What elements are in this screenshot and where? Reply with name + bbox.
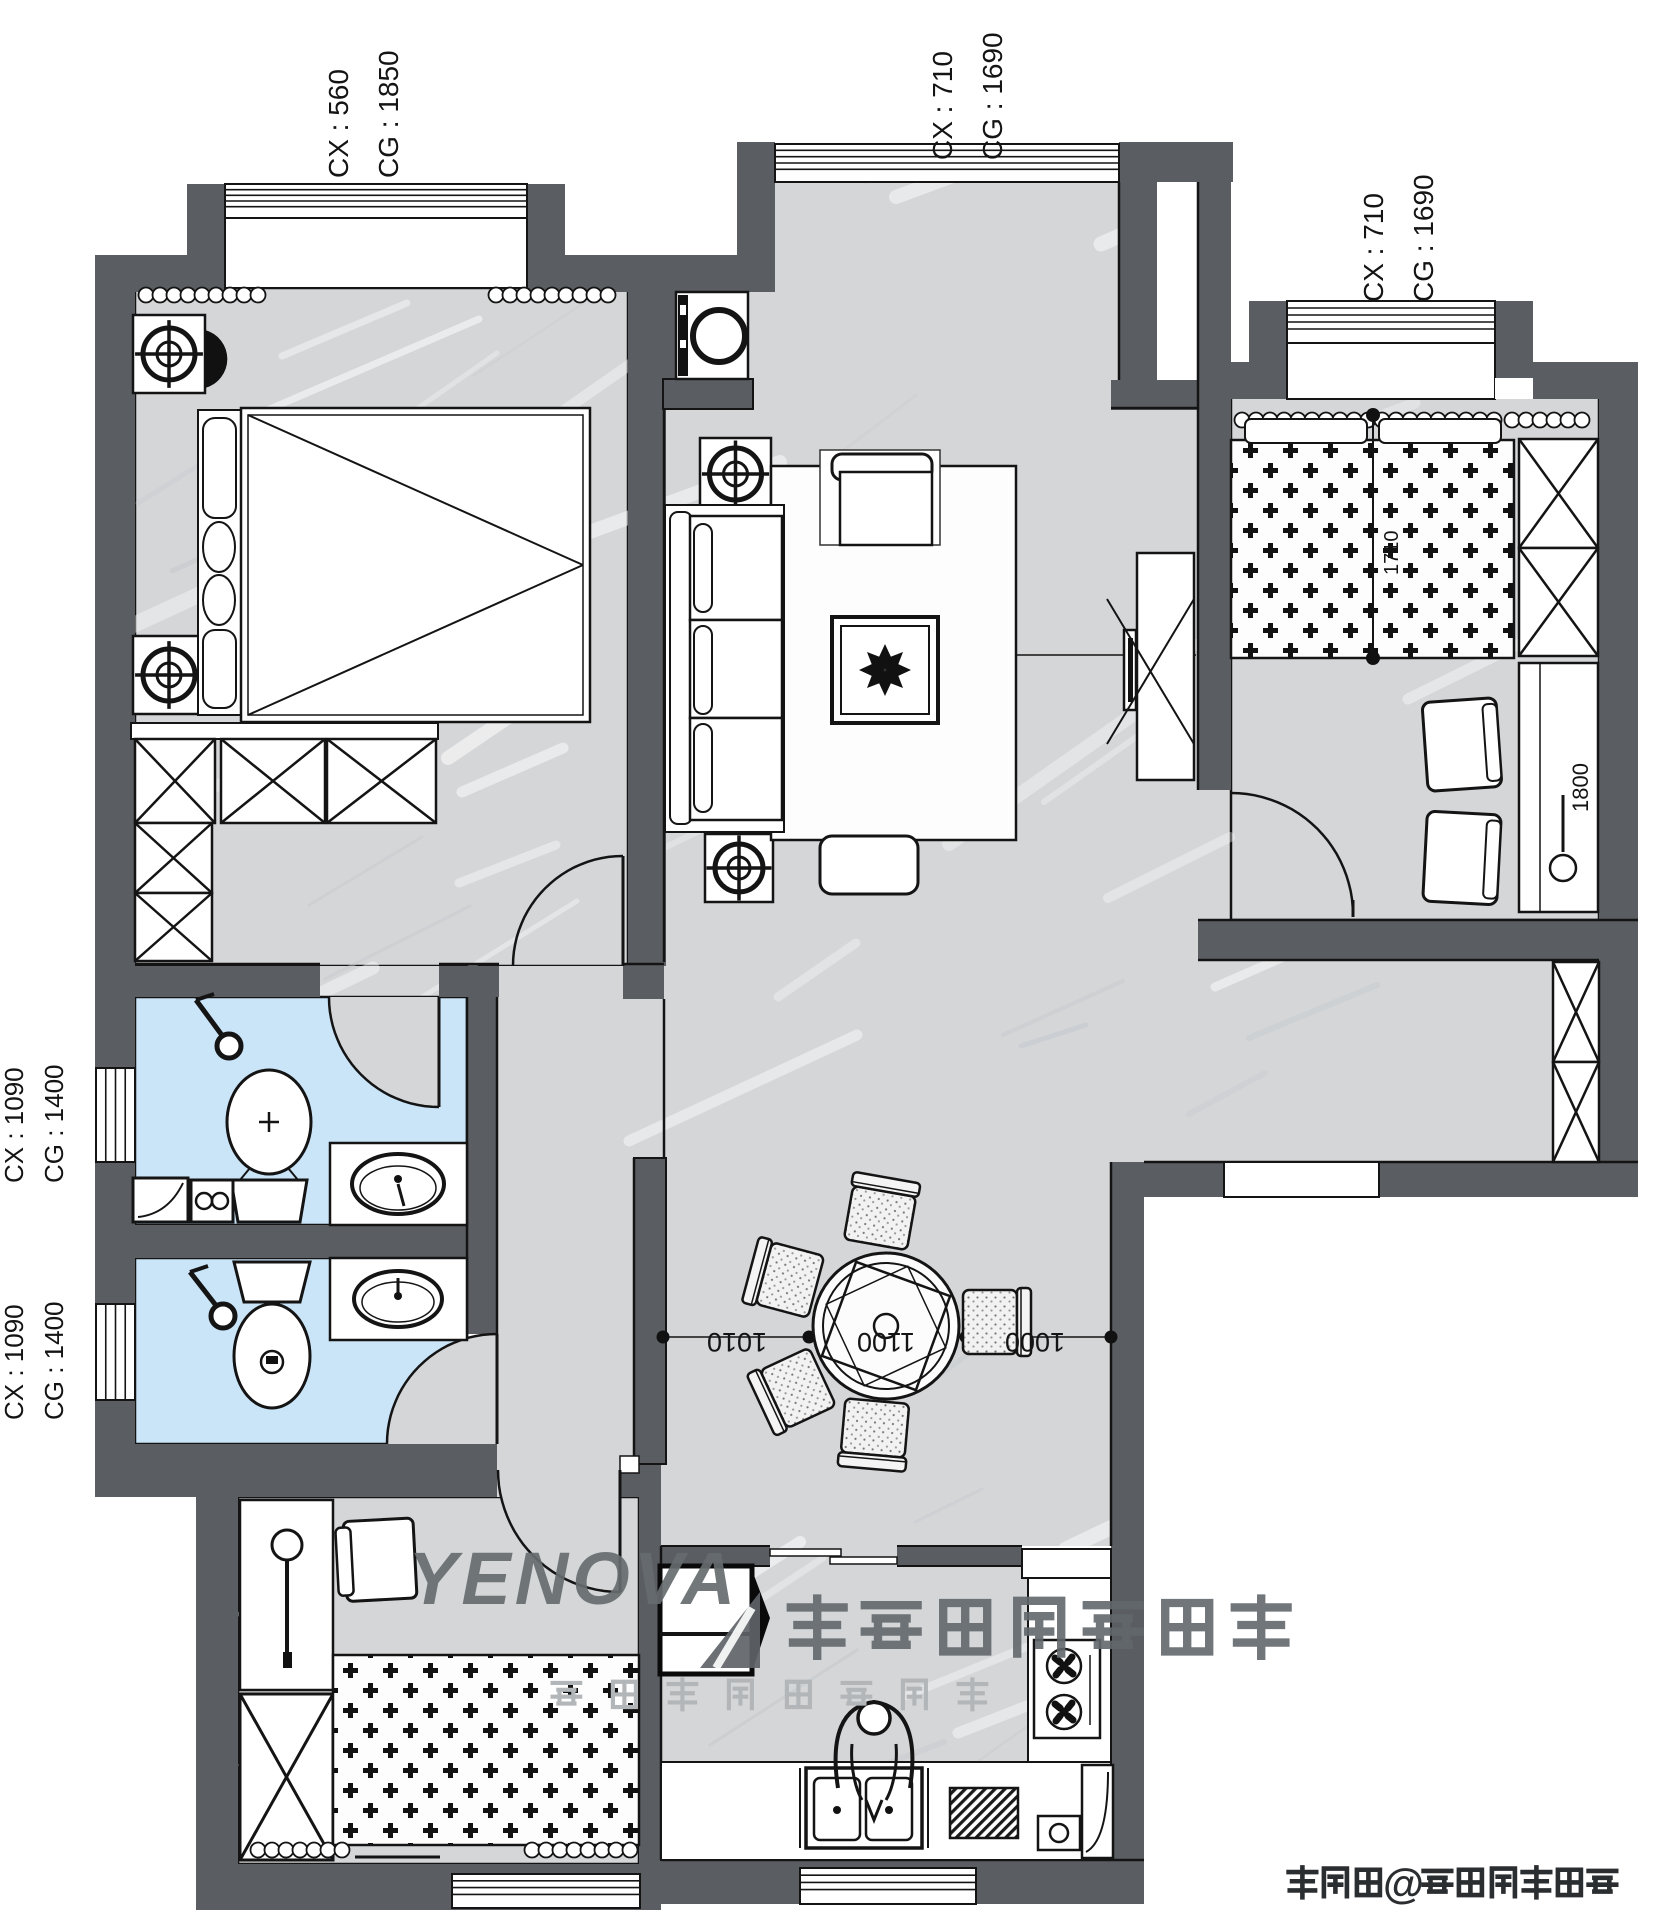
svg-text:CG : 1850: CG : 1850 (373, 50, 404, 178)
svg-text:CX : 1090: CX : 1090 (0, 1304, 29, 1420)
svg-text:YENOVA: YENOVA (408, 1537, 739, 1620)
svg-text:CX : 560: CX : 560 (323, 69, 354, 178)
svg-text:CX : 710: CX : 710 (1358, 193, 1389, 302)
svg-text:@: @ (1383, 1860, 1424, 1907)
svg-text:1710: 1710 (1381, 531, 1403, 576)
svg-text:1010: 1010 (707, 1327, 767, 1357)
svg-text:1800: 1800 (1568, 763, 1593, 812)
svg-text:CG : 1690: CG : 1690 (1408, 174, 1439, 302)
svg-text:1000: 1000 (1005, 1327, 1065, 1357)
svg-text:CG : 1690: CG : 1690 (977, 32, 1008, 160)
svg-text:CG : 1400: CG : 1400 (39, 1064, 69, 1183)
svg-text:CG : 1400: CG : 1400 (39, 1301, 69, 1420)
svg-text:CX : 1090: CX : 1090 (0, 1067, 29, 1183)
svg-text:1100: 1100 (857, 1327, 915, 1357)
svg-text:CX : 710: CX : 710 (927, 51, 958, 160)
